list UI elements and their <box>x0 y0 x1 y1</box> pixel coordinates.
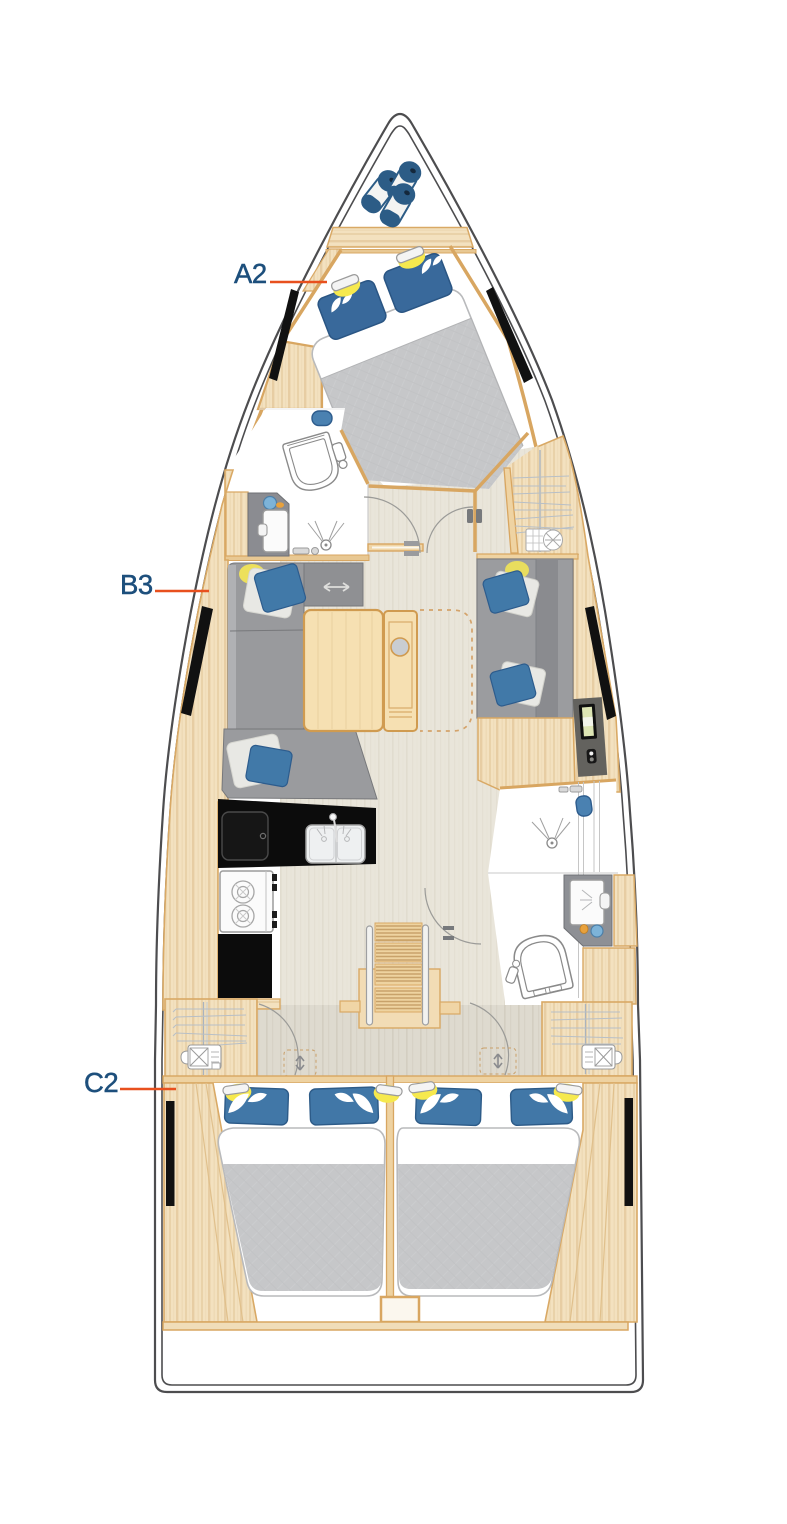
svg-text:A2: A2 <box>234 258 267 289</box>
svg-text:C2: C2 <box>84 1067 118 1098</box>
svg-text:B3: B3 <box>120 569 153 600</box>
